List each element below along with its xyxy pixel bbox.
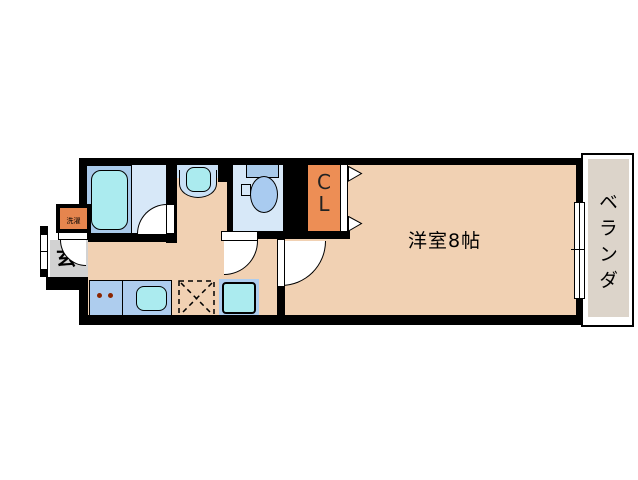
wall-left-lower <box>79 288 88 315</box>
laundry-label: 洗濯 <box>67 217 81 225</box>
wall-top <box>79 158 583 165</box>
bathtub <box>91 170 128 230</box>
bathroom-door <box>166 204 175 234</box>
washbasin <box>186 167 211 192</box>
balcony-window-center-rail <box>579 202 580 299</box>
entrance-door <box>58 232 88 240</box>
wall-bottom <box>79 315 583 325</box>
closet-door-arrow-bottom <box>348 216 363 232</box>
appliance-space <box>222 282 256 314</box>
wall-under-closet <box>308 231 350 239</box>
wall-under-bathroom <box>86 233 177 242</box>
toilet-bowl <box>250 176 278 213</box>
toilet-flush-handle <box>241 184 251 196</box>
closet-door-arrow-top <box>348 166 363 182</box>
laundry-space: 洗濯 <box>60 208 87 229</box>
wall-hall-door-top <box>258 231 285 239</box>
wall-toilet-right-block <box>283 158 308 239</box>
stove-unit <box>89 280 123 316</box>
wall-left-upper <box>79 158 86 208</box>
wall-niche-toilet-upper <box>218 158 233 182</box>
balcony-window-latch <box>571 249 585 250</box>
wall-right-upper <box>576 165 583 203</box>
main-room-label: 洋室8帖 <box>408 232 481 251</box>
refrigerator-space <box>178 280 215 317</box>
front-door-jamb-lower <box>40 251 48 270</box>
front-door-jamb-bottom-nub <box>40 269 48 277</box>
stove-burner-right <box>108 293 113 298</box>
stove-burner-left <box>97 293 102 298</box>
closet-label-line1: C <box>308 171 340 193</box>
front-door-jamb-top-nub <box>40 226 48 234</box>
front-door-jamb-upper <box>40 234 48 252</box>
wall-right-lower <box>576 298 583 315</box>
closet-door-panel <box>340 163 348 233</box>
closet: C L <box>308 165 340 231</box>
balcony-label: ベランダ <box>597 192 616 296</box>
floor-plan: ベランダ C L <box>0 0 638 480</box>
main-room-door <box>277 239 285 287</box>
closet-label-line2: L <box>308 193 340 215</box>
kitchen-sink <box>136 286 167 311</box>
toilet-door <box>221 231 258 241</box>
wall-under-main-door <box>277 287 285 315</box>
